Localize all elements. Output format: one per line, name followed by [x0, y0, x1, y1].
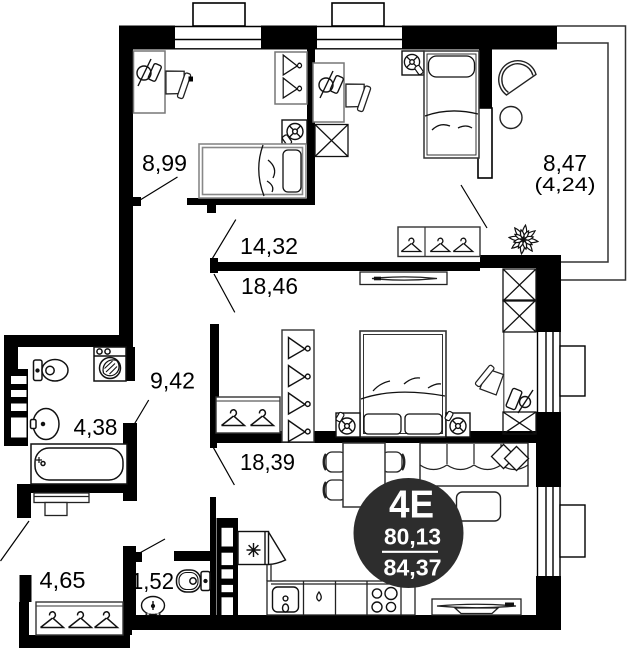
svg-text:84,37: 84,37 — [384, 555, 442, 581]
svg-text:4,65: 4,65 — [40, 567, 86, 593]
svg-text:4,38: 4,38 — [74, 414, 118, 440]
svg-text:(4,24): (4,24) — [535, 174, 596, 196]
svg-text:1,52: 1,52 — [131, 568, 174, 594]
svg-text:14,32: 14,32 — [240, 233, 298, 259]
svg-text:8,47: 8,47 — [543, 150, 587, 176]
svg-text:9,42: 9,42 — [150, 368, 195, 394]
svg-text:4E: 4E — [389, 484, 434, 527]
svg-text:80,13: 80,13 — [384, 524, 441, 550]
svg-text:8,99: 8,99 — [142, 150, 187, 176]
svg-text:18,39: 18,39 — [240, 449, 295, 475]
svg-text:18,46: 18,46 — [241, 273, 298, 299]
